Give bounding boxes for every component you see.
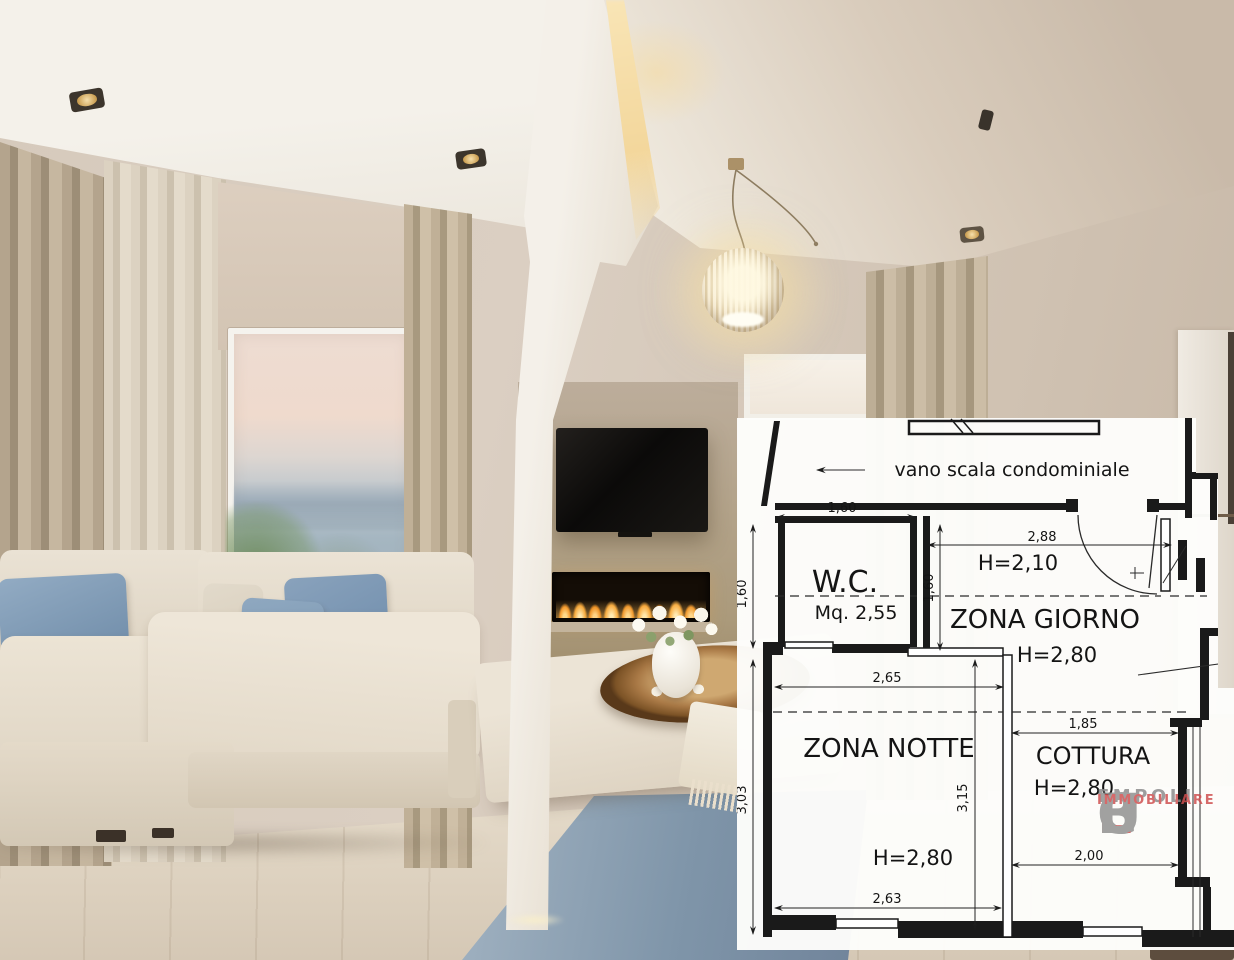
- real-estate-listing-image: vano scala condominiale W.C. Mq. 2,55 H=…: [0, 0, 1234, 960]
- dim-wc-left: 1,60: [737, 580, 750, 609]
- dim-notte-bottom: 2,63: [873, 892, 902, 907]
- tv-screen: [556, 428, 708, 532]
- column-base-glow: [506, 914, 564, 926]
- height-low-giorno: H=2,10: [978, 551, 1058, 575]
- dim-cottura-bottom: 2,00: [1075, 849, 1104, 864]
- sofa-base-right: [188, 752, 480, 808]
- room-label-giorno: ZONA GIORNO: [950, 605, 1140, 635]
- dim-notte-mid: 3,15: [956, 784, 971, 813]
- spotlight-bulb: [965, 230, 979, 240]
- dim-wc-top: 1,60: [828, 501, 857, 516]
- dim-giorno-left: 1,60: [922, 574, 937, 603]
- spotlight-bulb: [77, 93, 98, 107]
- room-label-cottura: COTTURA: [1036, 742, 1151, 770]
- room-area-wc: Mq. 2,55: [815, 602, 898, 624]
- pendant-lamp-globe: [702, 248, 784, 332]
- tv-stand: [618, 532, 652, 537]
- spotlight-bulb: [462, 153, 480, 165]
- recessed-spotlight-3: [959, 226, 984, 243]
- plan-walls: [761, 418, 1234, 947]
- logo-text-immobiliare: IMMOBILIARE: [1097, 794, 1215, 807]
- dim-cottura-top: 1,85: [1069, 717, 1098, 732]
- room-label-wc: W.C.: [812, 565, 878, 600]
- white-roses: [620, 592, 724, 652]
- floorplan-drawing: vano scala condominiale W.C. Mq. 2,55 H=…: [737, 418, 1234, 950]
- corridor-label: vano scala condominiale: [894, 459, 1129, 481]
- sofa-foot: [152, 828, 174, 838]
- room-label-notte: ZONA NOTTE: [803, 734, 974, 764]
- dim-notte-left: 3,03: [737, 786, 750, 815]
- dim-giorno-width: 2,88: [1028, 530, 1057, 545]
- lamp-diffuser: [722, 312, 765, 327]
- floorplan-overlay: vano scala condominiale W.C. Mq. 2,55 H=…: [737, 418, 1234, 950]
- dim-notte-top: 2,65: [873, 671, 902, 686]
- height-giorno: H=2,80: [1017, 643, 1097, 667]
- sofa-foot: [96, 830, 126, 842]
- picture-frame-edge: [1228, 332, 1234, 524]
- sofa-side-panel: [448, 700, 476, 798]
- height-notte: H=2,80: [873, 846, 953, 870]
